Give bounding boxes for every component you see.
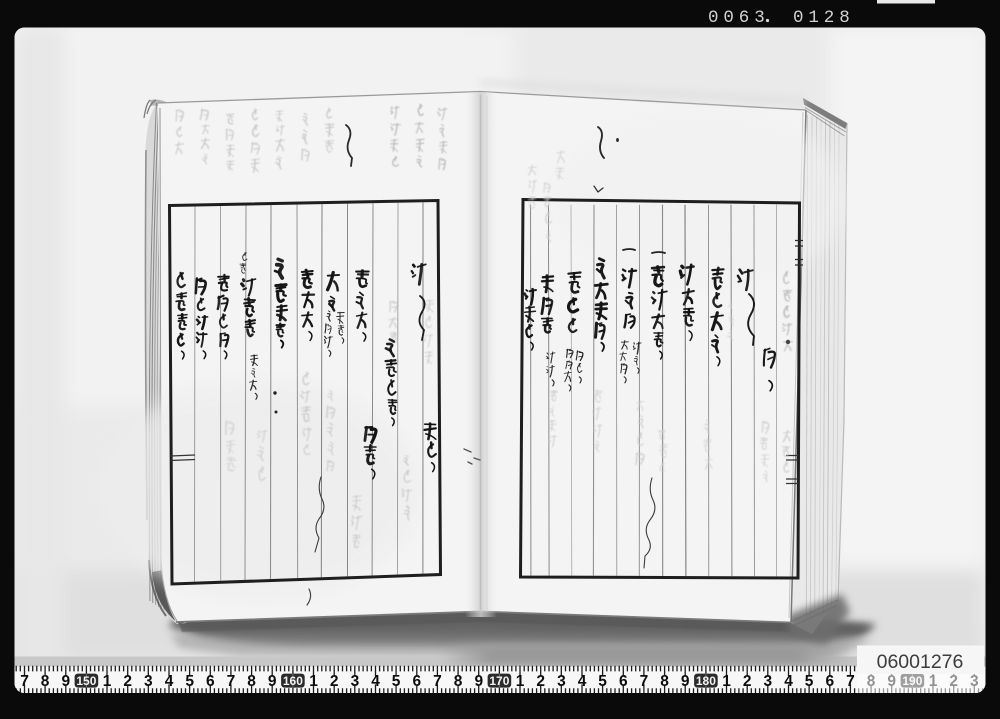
svg-text:3: 3 xyxy=(763,673,772,690)
svg-text:6: 6 xyxy=(619,673,628,690)
svg-text:2: 2 xyxy=(330,673,339,690)
svg-text:1: 1 xyxy=(722,673,731,690)
svg-text:9: 9 xyxy=(268,673,277,690)
svg-text:3: 3 xyxy=(144,673,153,690)
svg-text:4: 4 xyxy=(784,673,793,690)
svg-text:6: 6 xyxy=(206,673,215,690)
svg-text:7: 7 xyxy=(433,673,442,690)
svg-text:0063: 0063 xyxy=(708,8,770,28)
svg-text:5: 5 xyxy=(185,673,194,690)
svg-text:150: 150 xyxy=(76,674,96,688)
svg-text:7: 7 xyxy=(846,673,855,690)
svg-text:7: 7 xyxy=(227,673,236,690)
svg-text:8: 8 xyxy=(247,673,256,690)
svg-text:4: 4 xyxy=(371,673,380,690)
svg-text:5: 5 xyxy=(392,673,401,690)
svg-text:4: 4 xyxy=(578,673,587,690)
svg-text:2: 2 xyxy=(743,673,752,690)
svg-text:1: 1 xyxy=(103,673,112,690)
svg-text:06001276: 06001276 xyxy=(877,651,964,673)
svg-text:160: 160 xyxy=(283,674,303,688)
svg-text:8: 8 xyxy=(41,673,50,690)
svg-text:9: 9 xyxy=(61,673,70,690)
svg-text:7: 7 xyxy=(20,673,29,690)
svg-text:5: 5 xyxy=(805,673,814,690)
svg-text:3: 3 xyxy=(557,673,566,690)
svg-text:3: 3 xyxy=(351,673,360,690)
svg-text:7: 7 xyxy=(640,673,649,690)
svg-text:2: 2 xyxy=(123,673,132,690)
svg-text:1: 1 xyxy=(516,673,525,690)
svg-text:170: 170 xyxy=(489,674,509,688)
svg-text:8: 8 xyxy=(660,673,669,690)
svg-text:1: 1 xyxy=(309,673,318,690)
svg-text:6: 6 xyxy=(825,673,834,690)
svg-text:2: 2 xyxy=(536,673,545,690)
svg-text:6: 6 xyxy=(412,673,421,690)
svg-text:0128: 0128 xyxy=(793,8,855,28)
svg-text:8: 8 xyxy=(454,673,463,690)
svg-text:180: 180 xyxy=(696,674,716,688)
svg-text:9: 9 xyxy=(681,673,690,690)
svg-text:5: 5 xyxy=(598,673,607,690)
svg-text:4: 4 xyxy=(165,673,174,690)
svg-text:9: 9 xyxy=(474,673,483,690)
